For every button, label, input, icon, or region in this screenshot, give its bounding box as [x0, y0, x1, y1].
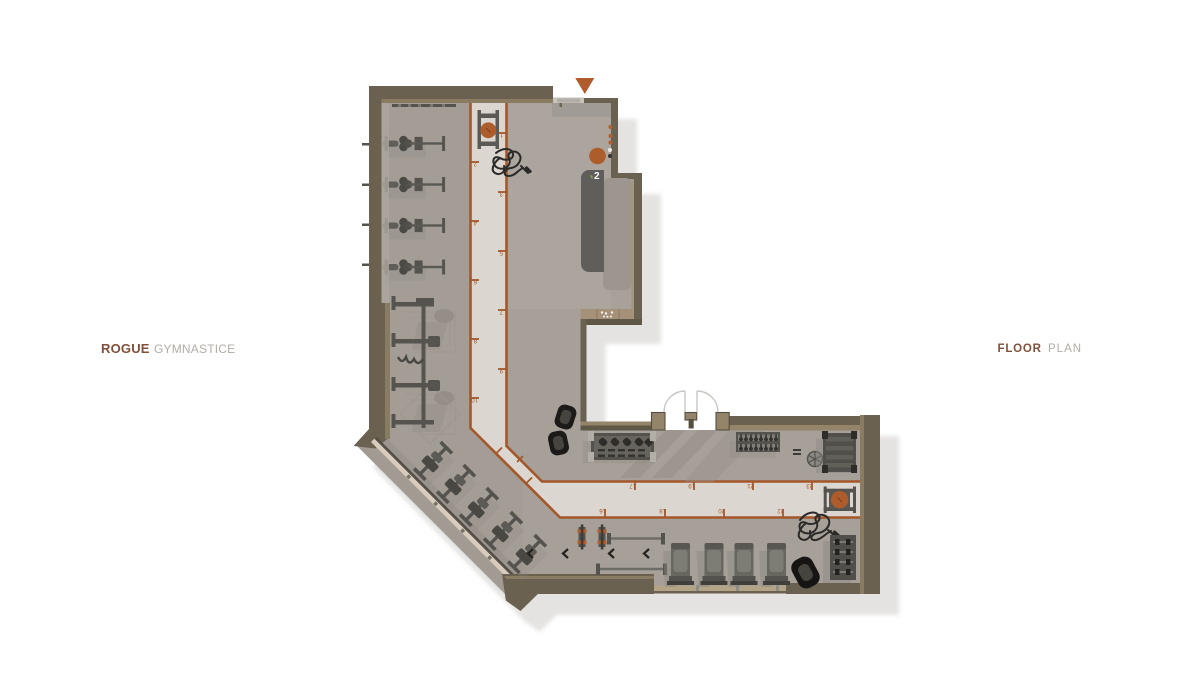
- svg-text:19: 19: [688, 482, 695, 488]
- svg-text:ROGUE: ROGUE: [101, 341, 150, 356]
- svg-text:18: 18: [659, 507, 666, 513]
- svg-text:PLAN: PLAN: [1048, 343, 1082, 355]
- svg-text:GYMNASTICE: GYMNASTICE: [154, 342, 235, 356]
- svg-text:20: 20: [718, 507, 725, 513]
- svg-text:2: 2: [594, 171, 600, 182]
- svg-text:17: 17: [629, 482, 636, 488]
- svg-text:FLOOR: FLOOR: [998, 343, 1042, 355]
- svg-text:16: 16: [599, 507, 606, 513]
- svg-text:22: 22: [777, 507, 784, 513]
- svg-text:21: 21: [747, 482, 754, 488]
- svg-text:10: 10: [471, 396, 478, 402]
- svg-text:23: 23: [806, 482, 813, 488]
